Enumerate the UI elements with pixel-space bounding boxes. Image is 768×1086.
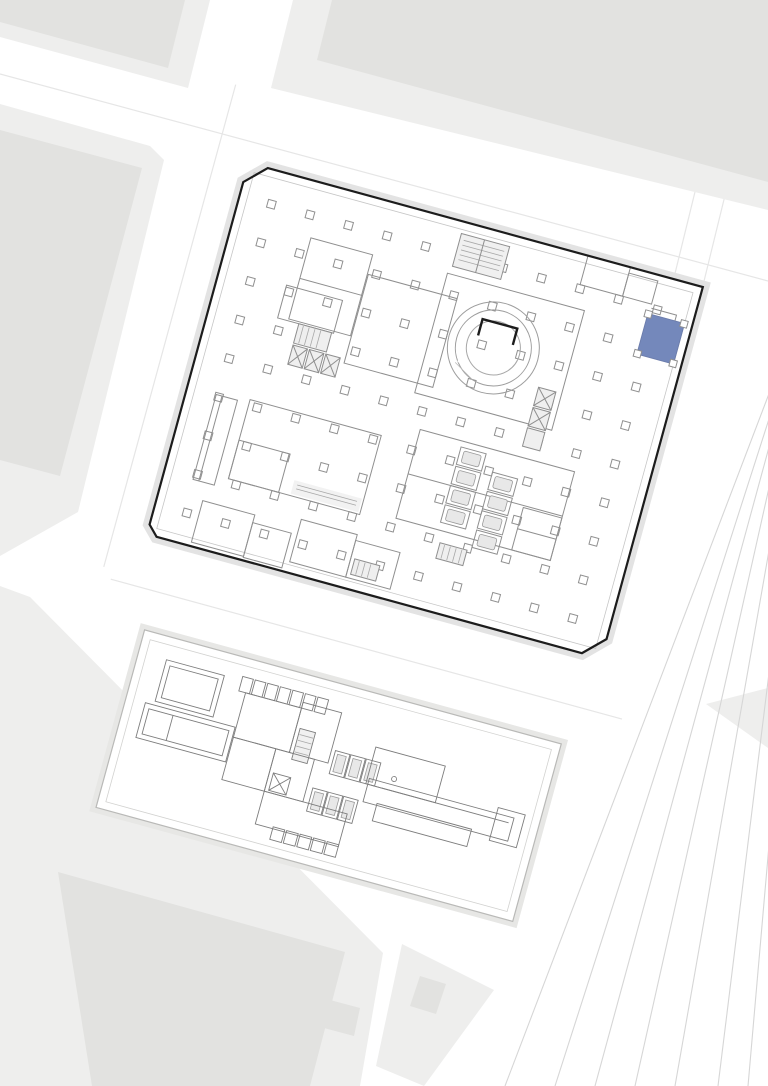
column [669,359,678,368]
site-plan-drawing [0,0,768,1086]
site-plan-canvas [0,0,768,1086]
column [633,349,642,358]
column [680,320,689,329]
column [644,310,653,319]
